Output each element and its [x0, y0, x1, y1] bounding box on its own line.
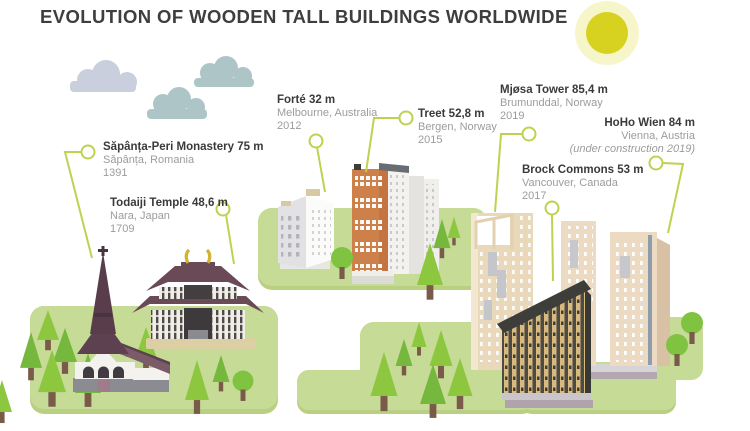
building-location: Nara, Japan: [110, 210, 228, 223]
building-location: Vancouver, Canada: [522, 177, 643, 190]
forte-building-illustration: [278, 189, 334, 269]
building-year: 1709: [110, 223, 228, 236]
label-treet: Treet 52,8 m Bergen, Norway 2015: [418, 108, 497, 147]
infographic-canvas: EVOLUTION OF WOODEN TALL BUILDINGS WORLD…: [0, 0, 750, 431]
label-hoho: HoHo Wien 84 m Vienna, Austria (under co…: [545, 117, 695, 156]
sun-icon: [575, 1, 639, 65]
building-year: 2017: [522, 190, 643, 203]
page-title: EVOLUTION OF WOODEN TALL BUILDINGS WORLD…: [40, 6, 568, 28]
building-location: Brumunddal, Norway: [500, 97, 608, 110]
building-year: 2015: [418, 134, 497, 147]
building-name: Săpânța-Peri Monastery 75 m: [103, 141, 263, 154]
building-status: (under construction 2019): [545, 143, 695, 156]
building-year: 1391: [103, 167, 263, 180]
todaiji-temple-illustration: [132, 250, 264, 349]
label-brock: Brock Commons 53 m Vancouver, Canada 201…: [522, 164, 643, 203]
label-sapanta: Săpânța-Peri Monastery 75 m Săpânța, Rom…: [103, 141, 263, 180]
building-name: HoHo Wien 84 m: [545, 117, 695, 130]
building-year: 2012: [277, 120, 377, 133]
cloud-icon: [70, 60, 137, 92]
building-location: Bergen, Norway: [418, 121, 497, 134]
building-location: Vienna, Austria: [545, 130, 695, 143]
cloud-icon: [147, 87, 207, 119]
cloud-icon: [194, 56, 254, 87]
label-todaiji: Todaiji Temple 48,6 m Nara, Japan 1709: [110, 197, 228, 236]
building-name: Brock Commons 53 m: [522, 164, 643, 177]
label-forte: Forté 32 m Melbourne, Australia 2012: [277, 94, 377, 133]
building-name: Treet 52,8 m: [418, 108, 497, 121]
building-location: Săpânța, Romania: [103, 154, 263, 167]
building-name: Todaiji Temple 48,6 m: [110, 197, 228, 210]
building-name: Forté 32 m: [277, 94, 377, 107]
building-location: Melbourne, Australia: [277, 107, 377, 120]
building-name: Mjøsa Tower 85,4 m: [500, 84, 608, 97]
